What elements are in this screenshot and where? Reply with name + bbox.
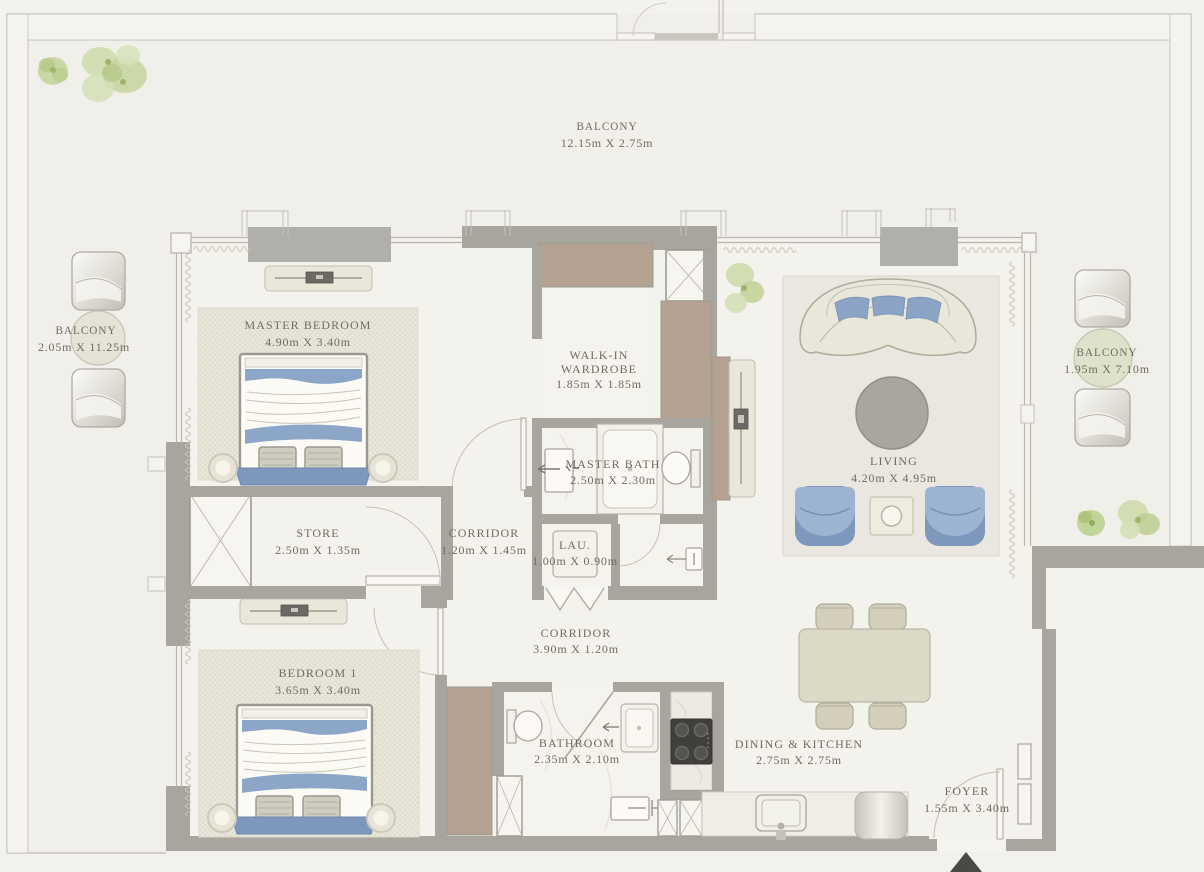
svg-text:2.35m X 2.10m: 2.35m X 2.10m: [534, 752, 620, 766]
svg-text:CORRIDOR: CORRIDOR: [449, 526, 520, 540]
svg-text:4.20m X 4.95m: 4.20m X 4.95m: [851, 471, 937, 485]
svg-text:12.15m X 2.75m: 12.15m X 2.75m: [561, 136, 654, 150]
svg-text:1.95m X 7.10m: 1.95m X 7.10m: [1064, 362, 1150, 376]
svg-text:FOYER: FOYER: [945, 784, 990, 798]
svg-text:LIVING: LIVING: [870, 454, 918, 468]
svg-text:BALCONY: BALCONY: [55, 325, 116, 337]
svg-text:BALCONY: BALCONY: [576, 121, 637, 133]
svg-text:1.00m X 0.90m: 1.00m X 0.90m: [532, 554, 618, 568]
svg-text:1.85m X 1.85m: 1.85m X 1.85m: [556, 377, 642, 391]
svg-text:MASTER BEDROOM: MASTER BEDROOM: [244, 318, 371, 332]
svg-text:3.65m X 3.40m: 3.65m X 3.40m: [275, 683, 361, 697]
svg-text:BEDROOM 1: BEDROOM 1: [279, 666, 358, 680]
svg-text:1.55m X 3.40m: 1.55m X 3.40m: [924, 801, 1010, 815]
svg-text:LAU.: LAU.: [559, 538, 591, 552]
svg-text:1.20m X 1.45m: 1.20m X 1.45m: [441, 543, 527, 557]
svg-text:2.05m X 11.25m: 2.05m X 11.25m: [38, 340, 130, 354]
svg-text:2.75m X 2.75m: 2.75m X 2.75m: [756, 753, 842, 767]
svg-text:2.50m X 1.35m: 2.50m X 1.35m: [275, 543, 361, 557]
svg-text:CORRIDOR: CORRIDOR: [541, 626, 612, 640]
svg-text:3.90m X 1.20m: 3.90m X 1.20m: [533, 642, 619, 656]
svg-text:WALK-IN: WALK-IN: [569, 348, 628, 362]
svg-text:WARDROBE: WARDROBE: [561, 362, 637, 376]
svg-text:STORE: STORE: [296, 526, 339, 540]
svg-text:BALCONY: BALCONY: [1076, 347, 1137, 359]
svg-text:2.50m X 2.30m: 2.50m X 2.30m: [570, 473, 656, 487]
svg-text:BATHROOM: BATHROOM: [539, 736, 615, 750]
svg-text:4.90m X 3.40m: 4.90m X 3.40m: [265, 335, 351, 349]
svg-text:MASTER BATH: MASTER BATH: [565, 457, 660, 471]
svg-text:DINING & KITCHEN: DINING & KITCHEN: [735, 737, 863, 751]
